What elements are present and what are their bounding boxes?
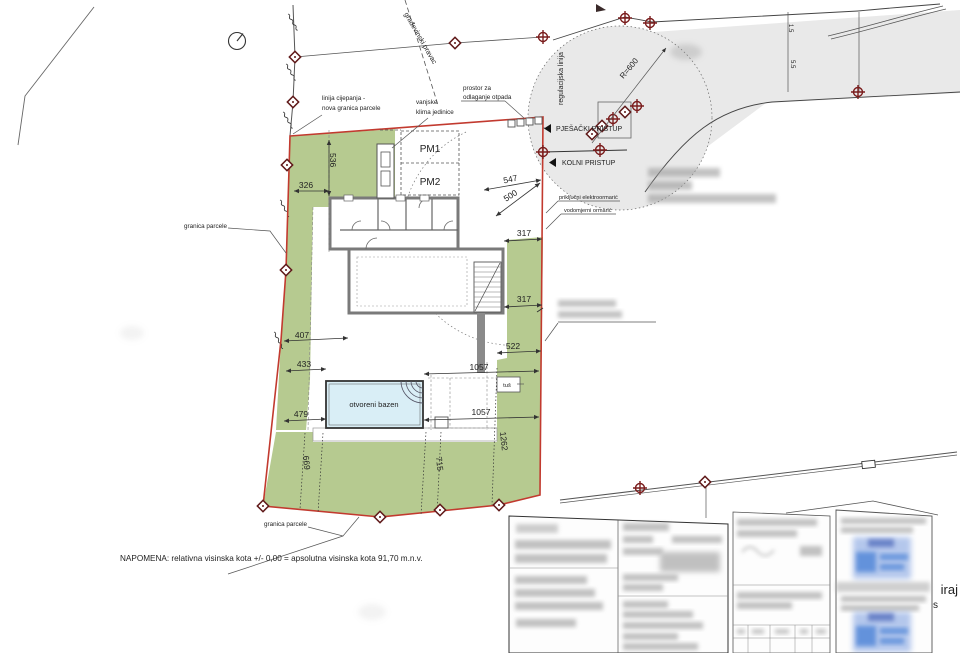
regulation-line-label: regulacijska linija xyxy=(558,52,565,105)
dim-road-2: 5.5 xyxy=(789,60,795,69)
split-line-label-1: linija cijepanja - xyxy=(322,95,365,102)
waste-label-2: odlaganje otpada xyxy=(463,94,512,101)
dim-479: 479 xyxy=(294,409,308,419)
pool-label: otvoreni bazen xyxy=(349,400,398,409)
dim-522: 522 xyxy=(506,341,520,351)
dim-road-1: 1.5 xyxy=(787,24,793,33)
title-block-secondary xyxy=(733,512,830,653)
dim-715: 715 xyxy=(434,456,445,471)
boundary-label-left: granica parcele xyxy=(184,223,228,230)
dim-669: 669 xyxy=(301,455,312,470)
dim-1262: 1262 xyxy=(498,431,510,451)
split-line-label-2: nova granica parcele xyxy=(322,105,381,112)
dim-433: 433 xyxy=(297,359,311,369)
staircase xyxy=(474,262,501,312)
dim-536: 536 xyxy=(328,153,338,167)
hvac-label-2: klima jedinice xyxy=(416,109,454,116)
parking-space-2-label: PM2 xyxy=(420,177,441,188)
watermark-fragment-1: iraj xyxy=(941,582,958,597)
dim-317-lower: 317 xyxy=(517,294,531,304)
vehicle-access-label: KOLNI PRISTUP xyxy=(562,160,616,167)
hvac-label-1: vanjske xyxy=(416,99,438,106)
pedestrian-access-label: PJEŠAČKI PRISTUP xyxy=(556,124,622,133)
north-symbol-icon xyxy=(229,33,246,50)
redacted-info-block-topright xyxy=(648,168,776,203)
deck-equipment-box xyxy=(435,417,448,428)
site-plan-drawing: linija cijepanja - nova granica parcele … xyxy=(0,0,960,653)
boundary-label-bottom: granica parcele xyxy=(264,521,308,528)
dim-1057-lower: 1057 xyxy=(472,407,491,417)
dim-547: 547 xyxy=(502,173,518,186)
dim-500: 500 xyxy=(502,187,520,203)
dim-317-upper: 317 xyxy=(517,228,531,238)
water-meter-label: vodomjerni ormarić xyxy=(564,208,612,214)
note-text: NAPOMENA: relativna visinska kota +/- 0,… xyxy=(120,554,422,563)
flag-marker-icon xyxy=(596,4,606,12)
site-plan-canvas: linija cijepanja - nova granica parcele … xyxy=(0,0,960,653)
waste-label-1: prostor za xyxy=(463,85,491,92)
pool-area xyxy=(313,362,524,441)
dim-326: 326 xyxy=(299,180,313,190)
dim-1057-upper: 1057 xyxy=(470,362,489,372)
electric-cabinet-label: priključni elektroormarić xyxy=(559,195,618,201)
building-footprint xyxy=(330,195,503,373)
parking-space-1-label: PM1 xyxy=(420,144,441,155)
title-block-main xyxy=(509,516,728,653)
dim-407: 407 xyxy=(295,330,309,340)
stamp-blue-2 xyxy=(853,612,911,652)
building-line-label: građevinski pravac xyxy=(402,12,437,66)
shower-label: tuš xyxy=(503,383,511,389)
redacted-labels-mid xyxy=(558,300,622,318)
stamp-blue-1 xyxy=(853,537,911,579)
